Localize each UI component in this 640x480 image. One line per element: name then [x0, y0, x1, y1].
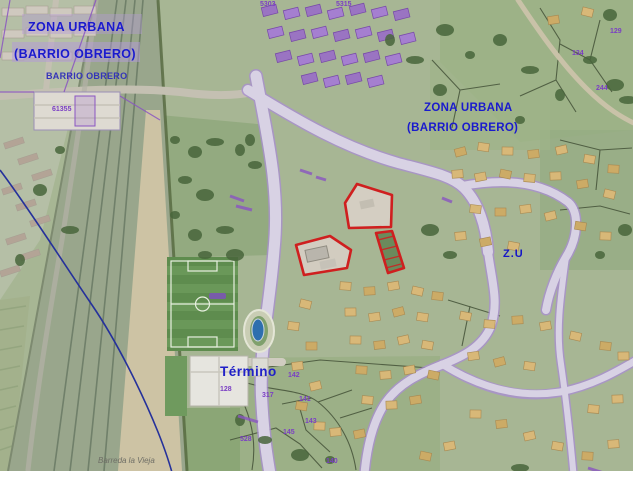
tree-canopy: [206, 138, 224, 146]
tree-canopy: [170, 136, 180, 144]
house: [612, 395, 623, 403]
house: [618, 352, 629, 360]
tree-canopy: [555, 89, 565, 101]
house: [455, 231, 467, 240]
tree-canopy: [248, 161, 262, 169]
tree-canopy: [583, 56, 597, 64]
cadastral-shading: [22, 14, 142, 34]
house: [470, 204, 482, 213]
house: [588, 405, 600, 414]
house: [528, 149, 540, 158]
tree-canopy: [433, 84, 447, 96]
tree-canopy: [235, 144, 245, 156]
pool: [252, 319, 264, 341]
house: [474, 172, 486, 182]
house: [306, 342, 317, 350]
cadastral-highlight-building: [75, 96, 95, 126]
house: [387, 281, 399, 291]
house: [523, 361, 535, 370]
house: [350, 336, 361, 344]
tree-canopy: [291, 449, 309, 461]
house: [467, 351, 479, 360]
map-canvas[interactable]: ZONA URBANA (BARRIO OBRERO) BARRIO OBRER…: [0, 0, 640, 480]
tree-canopy: [443, 251, 457, 259]
tree-canopy: [618, 224, 632, 236]
tree-canopy: [226, 249, 244, 261]
tree-canopy: [178, 176, 192, 184]
house: [495, 208, 506, 216]
row-house: [2, 8, 24, 16]
house: [452, 170, 464, 179]
tree-canopy: [188, 146, 202, 158]
tree-canopy: [188, 229, 202, 241]
tree-canopy: [325, 456, 335, 464]
field-parcel-mark: [209, 293, 226, 299]
tree-canopy: [595, 251, 605, 259]
house: [550, 172, 561, 180]
house: [520, 204, 532, 213]
house: [583, 154, 595, 164]
house: [386, 401, 397, 409]
tree-canopy: [603, 9, 617, 21]
house: [403, 365, 415, 375]
house: [362, 396, 374, 405]
training-pitch: [165, 356, 187, 416]
house: [295, 401, 307, 411]
house: [345, 308, 356, 316]
house: [330, 427, 342, 436]
house: [292, 361, 304, 370]
tree-canopy: [436, 24, 454, 36]
white-margin-right: [633, 0, 640, 480]
tree-canopy: [406, 56, 424, 64]
house: [477, 142, 489, 151]
house: [314, 422, 325, 430]
house: [502, 147, 513, 155]
house: [459, 311, 471, 321]
house: [496, 419, 508, 428]
house: [484, 320, 496, 329]
house: [421, 340, 433, 350]
house: [512, 316, 523, 325]
house: [368, 312, 380, 321]
tree-canopy: [55, 146, 65, 154]
tree-canopy: [216, 226, 234, 234]
tree-canopy: [521, 66, 539, 74]
house: [600, 232, 611, 240]
tree-canopy: [170, 211, 180, 219]
house: [582, 452, 593, 461]
house: [507, 241, 519, 251]
house: [574, 221, 586, 231]
house: [432, 291, 444, 300]
row-house: [2, 30, 24, 38]
house: [539, 321, 551, 331]
aerial-map-artwork: [0, 0, 640, 480]
tree-canopy: [493, 34, 507, 46]
small-building: [252, 358, 268, 376]
tree-canopy: [196, 189, 214, 201]
field-right: [540, 130, 633, 270]
white-margin-bottom: [0, 471, 640, 480]
house: [608, 165, 619, 174]
house: [340, 282, 352, 291]
house: [356, 366, 367, 375]
house: [380, 371, 392, 380]
house: [409, 395, 421, 405]
row-house: [26, 6, 48, 14]
tree-canopy: [15, 254, 25, 266]
tree-canopy: [385, 34, 395, 46]
house: [551, 441, 563, 451]
house: [374, 340, 386, 349]
house: [600, 341, 612, 350]
tree-canopy: [245, 134, 255, 146]
tree-canopy: [421, 224, 439, 236]
house: [547, 15, 559, 25]
house: [524, 174, 536, 183]
tree-canopy: [606, 79, 624, 91]
house: [288, 321, 300, 330]
tree-canopy: [33, 184, 47, 196]
tree-canopy: [61, 226, 79, 234]
house: [470, 410, 481, 418]
house: [416, 312, 428, 321]
tree-canopy: [465, 51, 475, 59]
tree-canopy: [515, 116, 525, 124]
tree-canopy: [258, 436, 272, 444]
house: [608, 440, 620, 449]
house: [364, 287, 375, 296]
house: [576, 179, 588, 189]
tree-canopy: [198, 251, 212, 259]
house: [443, 441, 455, 451]
